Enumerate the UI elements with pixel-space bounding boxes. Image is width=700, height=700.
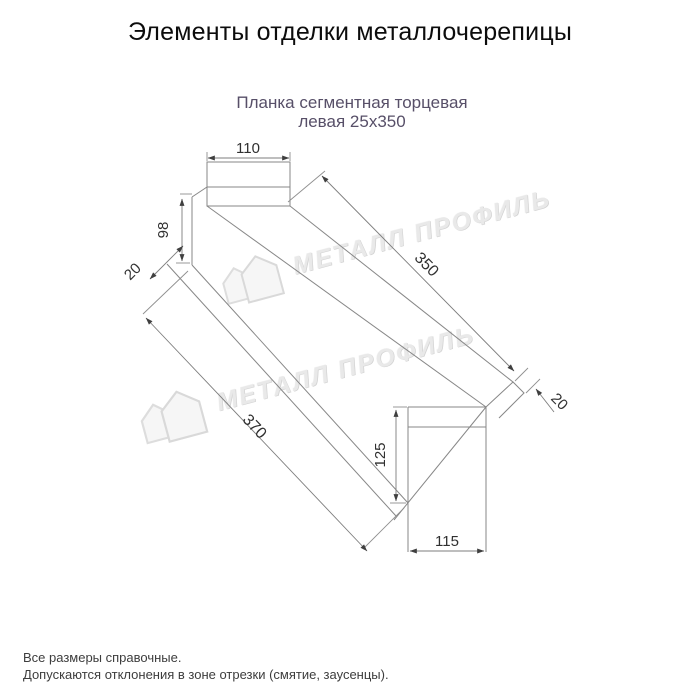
- dim-line-20-left: [150, 246, 183, 279]
- strip-hem-edge: [167, 264, 396, 516]
- right-hem-flap: [486, 382, 524, 418]
- dim-label-350: 350: [411, 249, 442, 280]
- dimension-lines: [146, 158, 554, 551]
- dim-label-125: 125: [372, 442, 389, 467]
- dim-label-20-right: 20: [547, 390, 571, 414]
- dim-line-350: [322, 176, 514, 371]
- part-outline: [167, 162, 524, 552]
- left-end-top-edge: [192, 187, 207, 197]
- top-flange-face: [207, 162, 290, 206]
- strip-top-edge: [290, 206, 513, 382]
- dim-label-98: 98: [155, 222, 172, 239]
- strip-fold-edge: [207, 206, 486, 407]
- dim-label-370: 370: [239, 411, 270, 442]
- extension-lines: [143, 152, 540, 549]
- dim-label-115: 115: [435, 533, 459, 550]
- footer-note-2: Допускаются отклонения в зоне отрезки (с…: [23, 666, 389, 683]
- footer-note-1: Все размеры справочные.: [23, 649, 389, 666]
- dim-label-20-left: 20: [121, 260, 145, 284]
- dim-label-110: 110: [236, 140, 260, 157]
- footer-notes: Все размеры справочные. Допускаются откл…: [23, 649, 389, 683]
- technical-drawing: 110 98 20 350 370 20 125 115: [0, 0, 700, 700]
